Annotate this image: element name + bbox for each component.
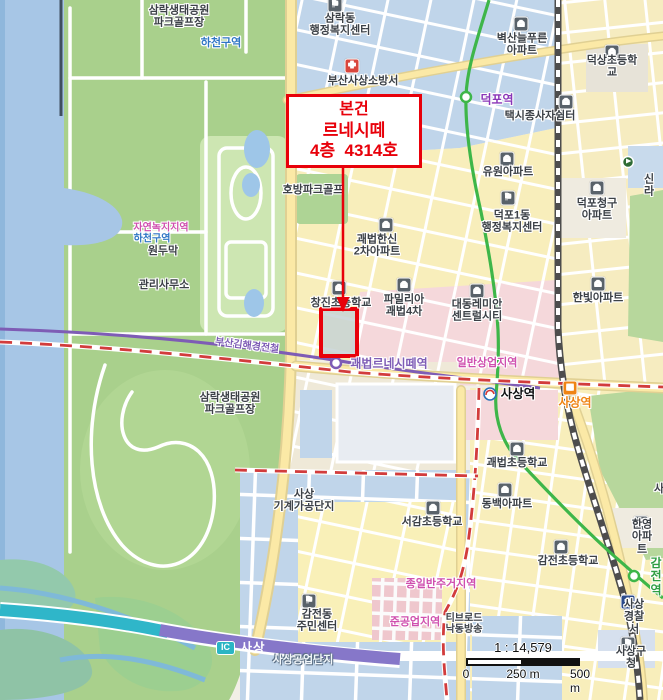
scale-segment-black xyxy=(523,658,580,666)
callout-line-3: 4층 4314호 xyxy=(310,141,398,161)
map-screenshot: 삼락생태공원 파크골프장하천구역삼락동 행정복지센터부산사상소방서벽산늘푸른 아… xyxy=(0,0,663,700)
subject-parcel-highlight xyxy=(319,307,359,358)
trail-marker-icon xyxy=(623,157,634,168)
subject-callout: 본건 르네시떼 4층 4314호 xyxy=(286,94,422,168)
callout-line-1: 본건 xyxy=(339,101,368,119)
scale-bar-graphic xyxy=(466,658,580,666)
scale-mid: 250 m xyxy=(506,667,539,681)
renecite-station-marker[interactable] xyxy=(331,358,341,368)
deokpo-station-marker[interactable] xyxy=(461,92,471,102)
scale-end: 500 m xyxy=(570,667,590,695)
ic-badge: IC xyxy=(216,641,235,655)
callout-line-2: 르네시떼 xyxy=(323,121,386,141)
scale-segment-white xyxy=(466,658,523,666)
gamjeon-station-marker[interactable] xyxy=(629,571,639,581)
scale-ratio: 1 : 14,579 xyxy=(462,640,584,655)
busan-metro-logo[interactable] xyxy=(484,388,496,400)
scale-bar: 1 : 14,579 0 250 m 500 m xyxy=(458,640,588,680)
scale-zero: 0 xyxy=(463,667,470,681)
